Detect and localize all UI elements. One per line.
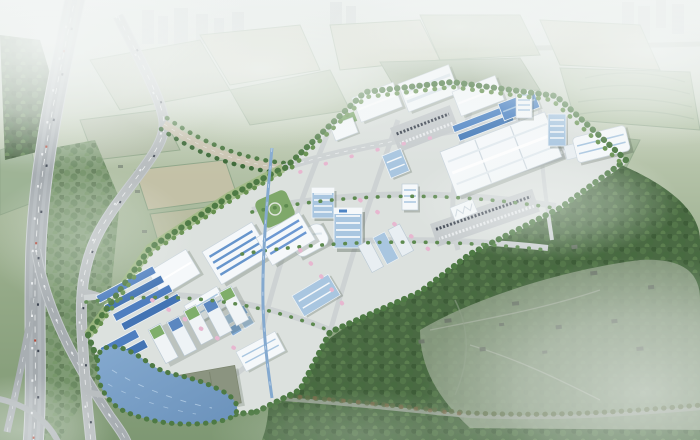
aerial-rendering xyxy=(0,0,700,440)
office-tower xyxy=(312,188,337,221)
aerial-rendering-canvas xyxy=(0,0,700,440)
rooftop-pool xyxy=(339,210,347,213)
